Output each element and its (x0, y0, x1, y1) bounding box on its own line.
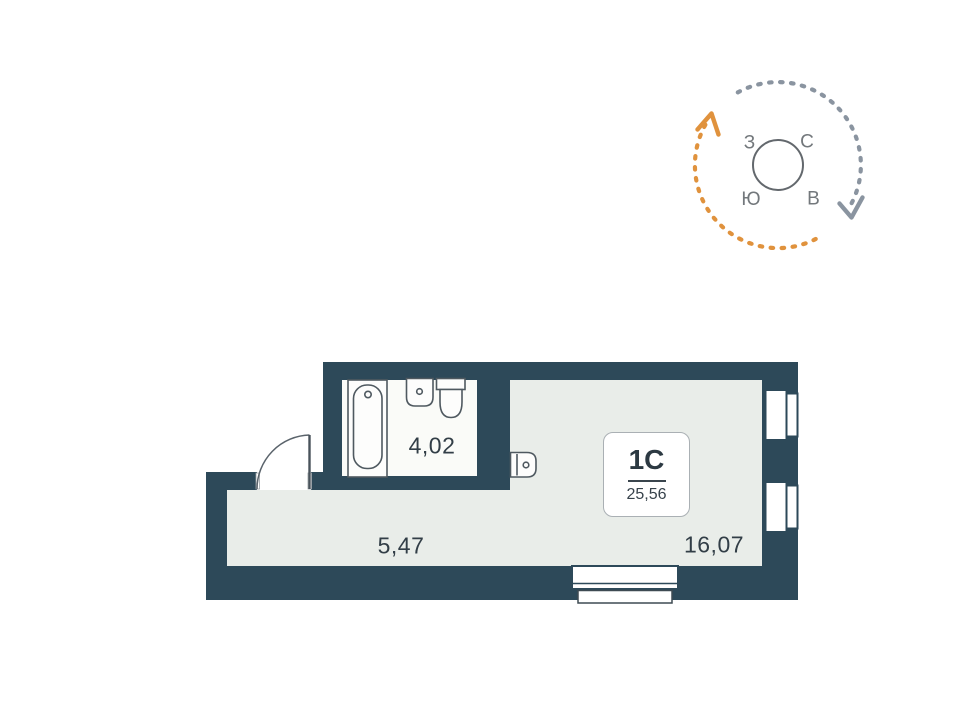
washbasin (407, 379, 434, 407)
compass-letter-west: З (744, 133, 755, 154)
unit-box-divider (628, 480, 666, 482)
unit-info-box: 1С 25,56 (603, 432, 690, 517)
compass-ring-icon (753, 140, 803, 190)
compass-rose: З С Ю В (695, 82, 863, 248)
window-2-outer-pane (787, 486, 798, 529)
window-1-pane (766, 390, 787, 440)
bathroom-area-label: 4,02 (409, 433, 456, 460)
wall-entry-right-of-door (311, 472, 342, 490)
compass-orange-arc (695, 121, 816, 248)
unit-total-area: 25,56 (626, 487, 666, 503)
wall-bathroom-living-separator (477, 362, 510, 490)
wall-bathroom-left (323, 362, 342, 490)
wall-entry-left-of-door (206, 472, 257, 490)
hallway-area-label: 5,47 (378, 533, 425, 560)
window-2-pane (766, 482, 787, 532)
compass-letter-east: В (807, 189, 820, 210)
door-swing-arc (257, 435, 310, 489)
unit-type-label: 1С (629, 446, 665, 474)
entry-door (256, 435, 312, 489)
floor-plan-page: З С Ю В 4,02 5,47 16,07 1С 25,56 (0, 0, 959, 710)
window-bottom-sill (578, 591, 672, 604)
floor-plan-drawing: З С Ю В (0, 0, 959, 710)
wall-bathroom-bottom (342, 476, 510, 490)
window-bottom-frame (572, 566, 678, 589)
window-bottom (572, 566, 678, 603)
compass-letter-south: Ю (741, 189, 760, 210)
living-room-area-label: 16,07 (684, 532, 744, 559)
wall-top (323, 362, 798, 380)
toilet-tank (437, 379, 466, 390)
toilet-bowl (440, 390, 462, 418)
wall-left (206, 472, 227, 600)
wall-mounted-sink (511, 453, 537, 478)
compass-letter-north: С (800, 132, 814, 153)
compass-orange-arrowhead-icon (698, 114, 719, 135)
window-1-outer-pane (787, 394, 798, 437)
wall-bottom (206, 566, 798, 600)
